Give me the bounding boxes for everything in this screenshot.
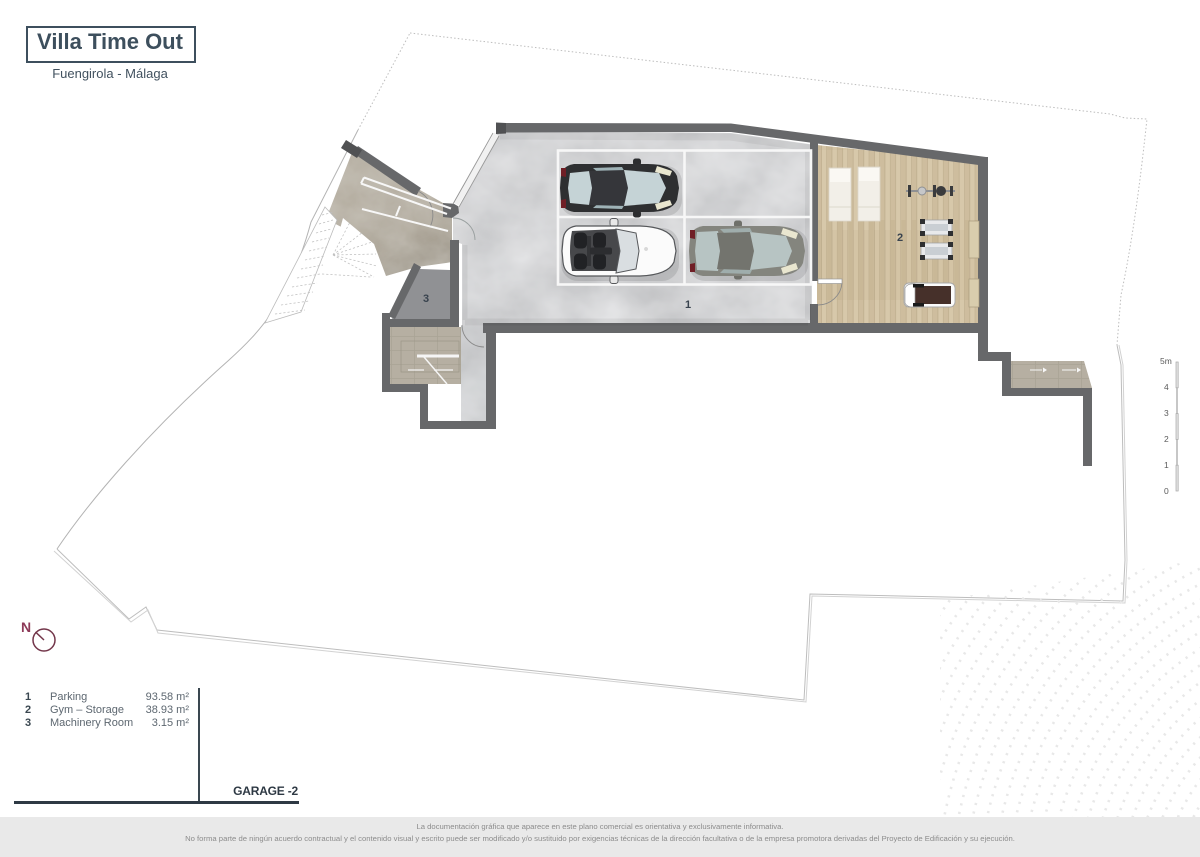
- svg-text:1: 1: [685, 299, 691, 311]
- svg-text:5m: 5m: [1160, 356, 1172, 366]
- svg-text:N: N: [21, 619, 31, 635]
- svg-text:1: 1: [1164, 460, 1169, 470]
- svg-text:4: 4: [1164, 382, 1169, 392]
- svg-text:2: 2: [1164, 434, 1169, 444]
- svg-text:3: 3: [1164, 408, 1169, 418]
- svg-text:3: 3: [423, 293, 429, 305]
- svg-text:2: 2: [897, 232, 903, 244]
- svg-text:0: 0: [1164, 486, 1169, 496]
